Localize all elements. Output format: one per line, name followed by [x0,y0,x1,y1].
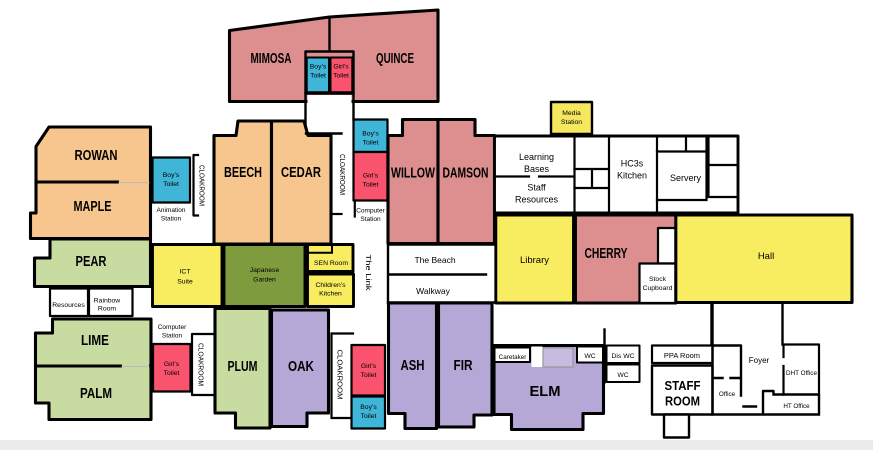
svg-text:Girl’s: Girl’s [164,361,180,368]
svg-text:ICT: ICT [180,269,191,276]
svg-text:Bases: Bases [524,164,550,174]
svg-text:Girl’s: Girl’s [363,173,379,180]
svg-text:Learning: Learning [519,152,554,162]
svg-text:Caretaker: Caretaker [499,354,527,361]
svg-text:Toilet: Toilet [310,73,326,80]
svg-text:MIMOSA: MIMOSA [251,51,292,67]
svg-text:Toilet: Toilet [363,140,379,147]
svg-text:FIR: FIR [454,358,473,374]
svg-text:Boy’s: Boy’s [163,172,180,179]
svg-text:LIME: LIME [81,333,109,349]
svg-text:Toilet: Toilet [333,73,349,80]
svg-text:Computer: Computer [356,208,385,215]
svg-text:HC3s: HC3s [621,159,644,169]
svg-text:Cupboard: Cupboard [643,285,673,292]
svg-text:Computer: Computer [158,324,187,331]
svg-text:OAK: OAK [288,359,314,375]
svg-text:ELM: ELM [530,384,561,400]
svg-text:Toilet: Toilet [164,370,180,377]
svg-text:Suite: Suite [177,279,193,286]
svg-text:DHT Office: DHT Office [786,370,817,377]
svg-text:Girl’s: Girl’s [333,64,349,71]
svg-text:Station: Station [561,119,582,126]
svg-text:CLOAKROOM: CLOAKROOM [338,154,345,195]
svg-text:Boy’s: Boy’s [360,404,377,411]
svg-text:Japanese: Japanese [250,267,280,274]
svg-text:Station: Station [161,216,182,223]
svg-text:Rainbow: Rainbow [94,298,121,305]
svg-text:Hall: Hall [758,251,774,262]
svg-text:Walkway: Walkway [416,286,450,296]
svg-text:CHERRY: CHERRY [585,246,628,262]
svg-text:PALM: PALM [80,386,112,402]
svg-text:Children’s: Children’s [315,282,346,289]
svg-text:Boy’s: Boy’s [362,131,379,138]
svg-text:CLOAKROOM: CLOAKROOM [198,165,205,206]
svg-text:HT Office: HT Office [783,403,810,410]
svg-text:Dis WC: Dis WC [611,353,634,360]
svg-text:Toilet: Toilet [363,182,379,189]
svg-text:PEAR: PEAR [76,254,107,270]
svg-text:Library: Library [520,255,549,266]
svg-text:WILLOW: WILLOW [391,166,435,182]
svg-text:Office: Office [719,391,736,398]
svg-text:QUINCE: QUINCE [376,51,414,67]
svg-text:Garden: Garden [253,277,276,284]
svg-text:Room: Room [98,306,116,313]
svg-text:CLOAKROOM: CLOAKROOM [197,343,204,386]
svg-text:Servery: Servery [670,173,702,183]
svg-text:CLOAKROOM: CLOAKROOM [336,350,343,400]
svg-text:Boy’s: Boy’s [310,64,327,71]
svg-text:BEECH: BEECH [224,165,262,181]
svg-text:ASH: ASH [401,358,425,374]
svg-text:Foyer: Foyer [749,356,770,365]
svg-text:Toilet: Toilet [163,181,179,188]
svg-text:Staff: Staff [527,183,546,193]
svg-text:Resources: Resources [52,302,85,309]
svg-text:The Link: The Link [364,255,373,291]
svg-text:ROOM: ROOM [665,395,700,409]
svg-text:SEN Room: SEN Room [314,260,348,267]
svg-text:Station: Station [162,333,183,340]
svg-text:Kitchen: Kitchen [617,171,647,181]
svg-text:PPA Room: PPA Room [664,351,700,360]
svg-text:STAFF: STAFF [665,379,701,393]
svg-text:PLUM: PLUM [228,359,258,375]
svg-text:WC: WC [617,372,628,379]
svg-text:WC: WC [584,353,595,360]
svg-text:Animation: Animation [157,207,186,214]
svg-text:Stock: Stock [649,276,667,283]
svg-text:Toilet: Toilet [361,372,377,379]
svg-text:The Beach: The Beach [414,255,455,265]
svg-text:MAPLE: MAPLE [74,199,112,215]
svg-text:Resources: Resources [515,195,559,205]
svg-text:Girl’s: Girl’s [361,363,377,370]
svg-text:Media: Media [562,110,581,117]
svg-text:Kitchen: Kitchen [319,291,342,298]
svg-text:Toilet: Toilet [361,413,377,420]
svg-text:CEDAR: CEDAR [281,165,321,181]
svg-text:Station: Station [360,216,381,223]
svg-text:DAMSON: DAMSON [443,166,489,182]
svg-text:ROWAN: ROWAN [75,148,118,164]
